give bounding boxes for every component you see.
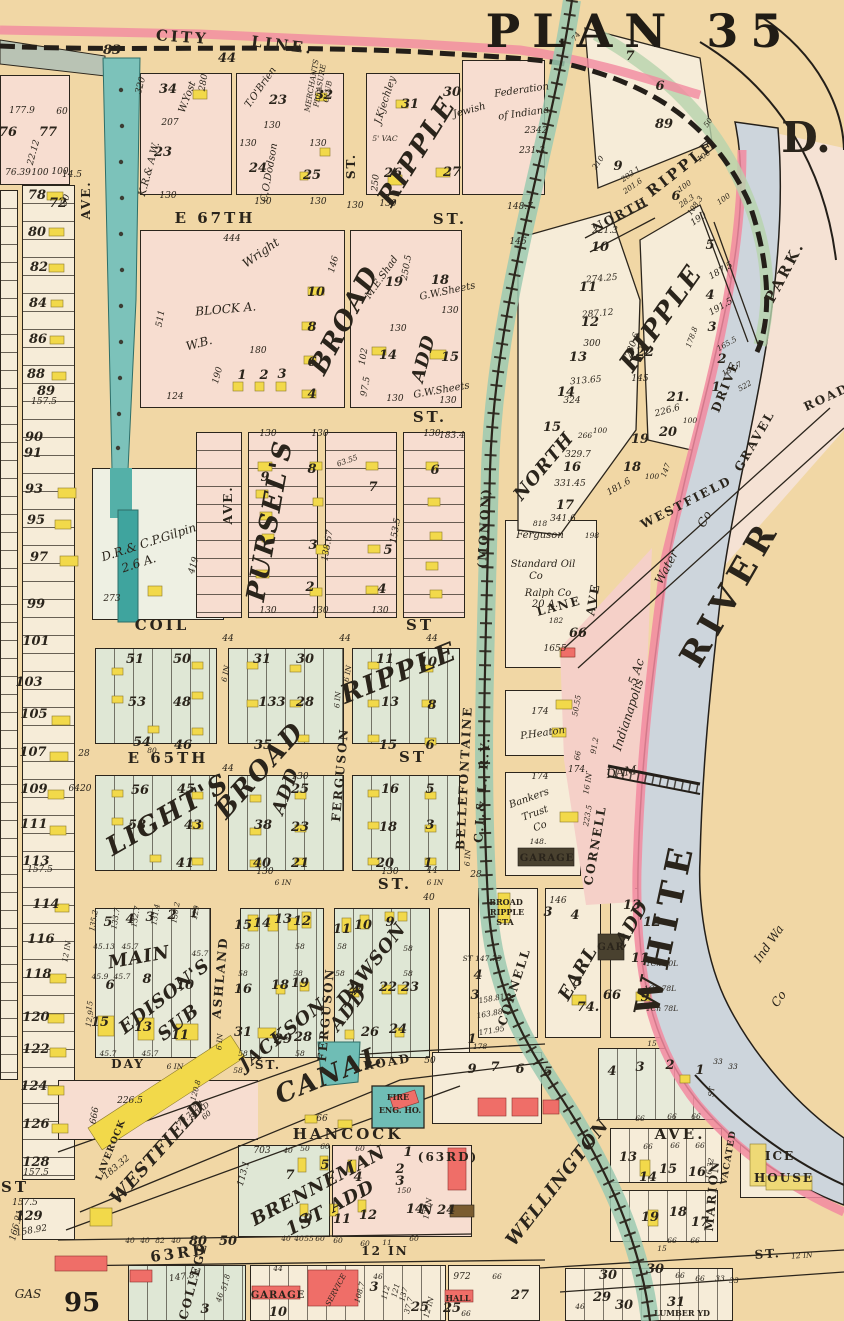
map-label: 6 (655, 79, 664, 94)
map-label: 83 (103, 43, 121, 58)
map-label: ST (399, 748, 427, 766)
map-label: 21. (666, 390, 690, 405)
map-label: 40 (170, 1236, 181, 1245)
map-label: 44 (221, 764, 234, 774)
city-block (95, 648, 217, 744)
map-label: GAS (15, 1287, 41, 1301)
map-label: 130 (346, 201, 363, 211)
city-block (432, 1052, 542, 1124)
map-label: 12 (581, 315, 599, 330)
map-label: 12 IN (361, 1244, 408, 1258)
map-label: HANCOCK (293, 1125, 404, 1143)
map-label: 14 (557, 385, 575, 400)
map-label: 15 (657, 1244, 667, 1253)
map-label: 89 (655, 117, 673, 132)
map-label: AVE. (79, 180, 93, 220)
map-label: RIPPLE (613, 259, 709, 378)
city-block (0, 75, 70, 185)
map-label: 58 (233, 1066, 243, 1075)
map-label: DAY (111, 1057, 145, 1071)
map-label: C.I.& L. R.Y. (471, 736, 492, 843)
map-label: 329.7 (565, 450, 591, 460)
plan-title: PLAN 35 (440, 4, 840, 58)
map-label: 44 (218, 51, 236, 66)
map-label: WESTFIELD (637, 473, 734, 531)
map-label: 210 (590, 154, 606, 172)
map-label: 6 IN (167, 1062, 184, 1071)
city-block (240, 908, 324, 1058)
map-label: 331.45 (554, 479, 586, 489)
map-label: 178.8 (684, 325, 700, 348)
map-label: 11 (579, 280, 597, 295)
map-label: 5 (705, 238, 714, 253)
map-label: Co (768, 988, 789, 1009)
city-block (334, 908, 430, 1058)
map-label: 20 (658, 425, 677, 440)
city-block (228, 648, 344, 744)
city-block (565, 1268, 733, 1321)
map-label: 6 IN (214, 1033, 224, 1051)
city-block (22, 1198, 75, 1240)
map-label: ST. (754, 1246, 781, 1262)
map-label: 15 (84, 1000, 95, 1011)
map-label: 313.65 (570, 375, 603, 388)
map-label: 203.1 (618, 164, 642, 184)
city-block (350, 230, 462, 408)
map-label: 28 (77, 749, 90, 759)
map-label: 221.3 (591, 226, 618, 236)
map-label: NORTH (509, 428, 579, 505)
map-label: 287.12 (581, 308, 615, 321)
city-block (325, 432, 397, 618)
map-label: 100 (683, 416, 698, 425)
city-block (228, 775, 344, 871)
map-label: 201.6 (620, 176, 644, 196)
map-label: GRAVEL (732, 408, 778, 474)
dam (608, 766, 700, 794)
map-label: 184.7 (720, 359, 743, 378)
map-label: D. (781, 113, 831, 162)
map-label: DRIVE (709, 359, 742, 415)
map-label: LINE. (250, 32, 315, 58)
map-label: 190 (689, 210, 709, 228)
map-label: Ind Wa (750, 922, 786, 966)
city-block (128, 1265, 246, 1321)
map-label: 40 (422, 893, 435, 903)
map-label: WELLINGTON (502, 1115, 614, 1251)
map-label: 12.9 (84, 1009, 96, 1027)
map-label: ST. (255, 1058, 281, 1072)
city-block (478, 888, 538, 1038)
city-block (505, 772, 581, 876)
map-label: ST. (344, 153, 358, 179)
city-block (598, 1048, 732, 1120)
map-label: Co (694, 509, 714, 530)
map-label: 191.5 (707, 296, 735, 318)
map-label: 44 (338, 634, 351, 644)
map-label: 82 (155, 1236, 165, 1245)
map-label: NORTH (590, 194, 651, 235)
map-label: 130 (254, 197, 271, 207)
page-ref: 95 (64, 1288, 100, 1318)
map-label: 5 Ac (625, 657, 647, 687)
map-label: 15 (647, 1039, 657, 1048)
map-label: 6 IN (427, 878, 444, 887)
map-label: 40 (124, 1236, 135, 1245)
map-label: Indianapolis (610, 677, 647, 753)
map-label: 12 IN (791, 1250, 813, 1261)
city-block (95, 908, 211, 1058)
city-block (140, 73, 232, 195)
map-label: CORNELL (581, 804, 609, 886)
map-label: 19 (631, 432, 649, 447)
map-label: 6 (671, 189, 680, 204)
map-label: 181.6 (605, 476, 633, 498)
city-block (238, 1145, 330, 1237)
ice-house-parcel (740, 1138, 835, 1198)
city-block (610, 1128, 722, 1183)
city-line-road (0, 40, 105, 76)
city-block (352, 648, 460, 744)
city-block (332, 1145, 472, 1237)
city-block (196, 432, 242, 618)
city-block (248, 432, 318, 618)
city-block (505, 520, 597, 668)
map-label: 223.5 (581, 804, 594, 828)
map-label: 183.32 (101, 1153, 132, 1181)
map-label: 16 IN (581, 772, 594, 795)
city-block (58, 1080, 258, 1140)
city-block (95, 775, 217, 871)
map-label: 28.3 (676, 192, 696, 210)
map-label: 60 (360, 1239, 370, 1248)
map-label: 6 IN (463, 849, 473, 867)
map-label: 226.6 (653, 403, 682, 420)
map-label: 146 (509, 237, 526, 247)
city-block (0, 190, 18, 1080)
map-label: ST (1, 1178, 29, 1196)
map-label: 50 (702, 116, 715, 129)
map-label: ST (406, 616, 434, 634)
map-label: 145 (631, 374, 648, 384)
map-label: 230.6 (624, 331, 643, 360)
map-label: 50 (219, 1234, 237, 1249)
map-label: 324 (563, 396, 580, 406)
city-block (610, 1190, 718, 1242)
city-block (438, 908, 470, 1058)
map-label: 148.7 (507, 202, 533, 212)
map-label: 40 (139, 1236, 150, 1245)
map-label: 522 (736, 378, 753, 393)
map-label: 108.3 (685, 194, 705, 217)
map-label: 44 (425, 634, 438, 644)
map-label: 44 (221, 634, 234, 644)
map-canvas: CITYLINE.8344D.E 67THST.ST.COILSTE 65THS… (0, 0, 844, 1321)
map-label: 18 (623, 460, 641, 475)
map-label: PARK. (761, 238, 809, 306)
city-block (610, 888, 666, 1038)
map-label: CITY (155, 26, 209, 48)
map-label: 80 (147, 746, 157, 755)
map-label: (MONON) (475, 487, 493, 569)
map-label: DAM (604, 763, 638, 781)
map-label: E 67TH (175, 209, 256, 227)
map-label: 100 (676, 178, 693, 194)
map-label: 63RD (149, 1240, 209, 1266)
map-label: 3 (707, 320, 716, 335)
map-label: 60 (333, 1236, 343, 1245)
city-block (448, 1265, 540, 1321)
city-block (366, 73, 460, 195)
map-label: 130 (379, 199, 396, 209)
map-label: 147 (659, 462, 672, 479)
map-label: 13 (569, 350, 587, 365)
map-label: 80 (189, 1234, 207, 1249)
fire-engine-lot (372, 1086, 424, 1128)
map-label: 22 (635, 345, 654, 360)
map-label: ST. (413, 408, 447, 426)
map-label: E 65TH (128, 749, 209, 767)
map-label: ST. (378, 875, 412, 893)
city-block (505, 690, 595, 756)
map-label: 187.5 (707, 260, 735, 282)
map-label: 28 (469, 870, 482, 880)
fire-engine-building (390, 1090, 419, 1110)
map-label: 274.25 (585, 273, 619, 286)
city-block (352, 775, 460, 871)
map-label: Water (652, 547, 682, 587)
map-label: 165.5 (715, 334, 738, 353)
map-label: 100 (593, 426, 608, 435)
map-label: 130 (309, 197, 326, 207)
city-block (250, 1265, 446, 1321)
map-label: 15 (543, 420, 561, 435)
map-label: 100 (695, 148, 712, 164)
map-label: 66 (316, 1114, 328, 1124)
city-block (403, 432, 465, 618)
map-label: 16 (563, 460, 581, 475)
map-label: 5 (543, 1065, 552, 1080)
map-label: FIRE (387, 1092, 409, 1102)
map-label: RIVER (672, 511, 789, 674)
map-label: 100 (645, 472, 660, 481)
map-label: ST. (433, 210, 467, 228)
city-block (140, 230, 345, 408)
map-label: ASHLAND (209, 936, 230, 1020)
map-label: 6 IN (275, 878, 292, 887)
map-label: ENG. HO. (379, 1105, 422, 1115)
city-block (545, 888, 601, 1038)
city-block (462, 60, 545, 195)
map-label: VACATED (719, 1130, 739, 1187)
map-label: ROAD (802, 381, 844, 414)
map-label: 2 (716, 352, 726, 367)
map-label: 178 (473, 1042, 488, 1051)
map-label: 4 (705, 288, 714, 303)
map-label: RIPPLE (643, 136, 719, 201)
map-label: 300 (583, 339, 600, 349)
city-block (22, 185, 75, 1180)
city-block (236, 73, 344, 195)
map-label: 100 (715, 191, 732, 207)
map-label: 1 (711, 380, 720, 395)
map-label: 266 (577, 431, 593, 440)
map-label: 9 (613, 159, 622, 174)
map-label: 10 (591, 240, 609, 255)
map-label: 11 (382, 1238, 392, 1247)
map-label: 17 (556, 498, 574, 513)
